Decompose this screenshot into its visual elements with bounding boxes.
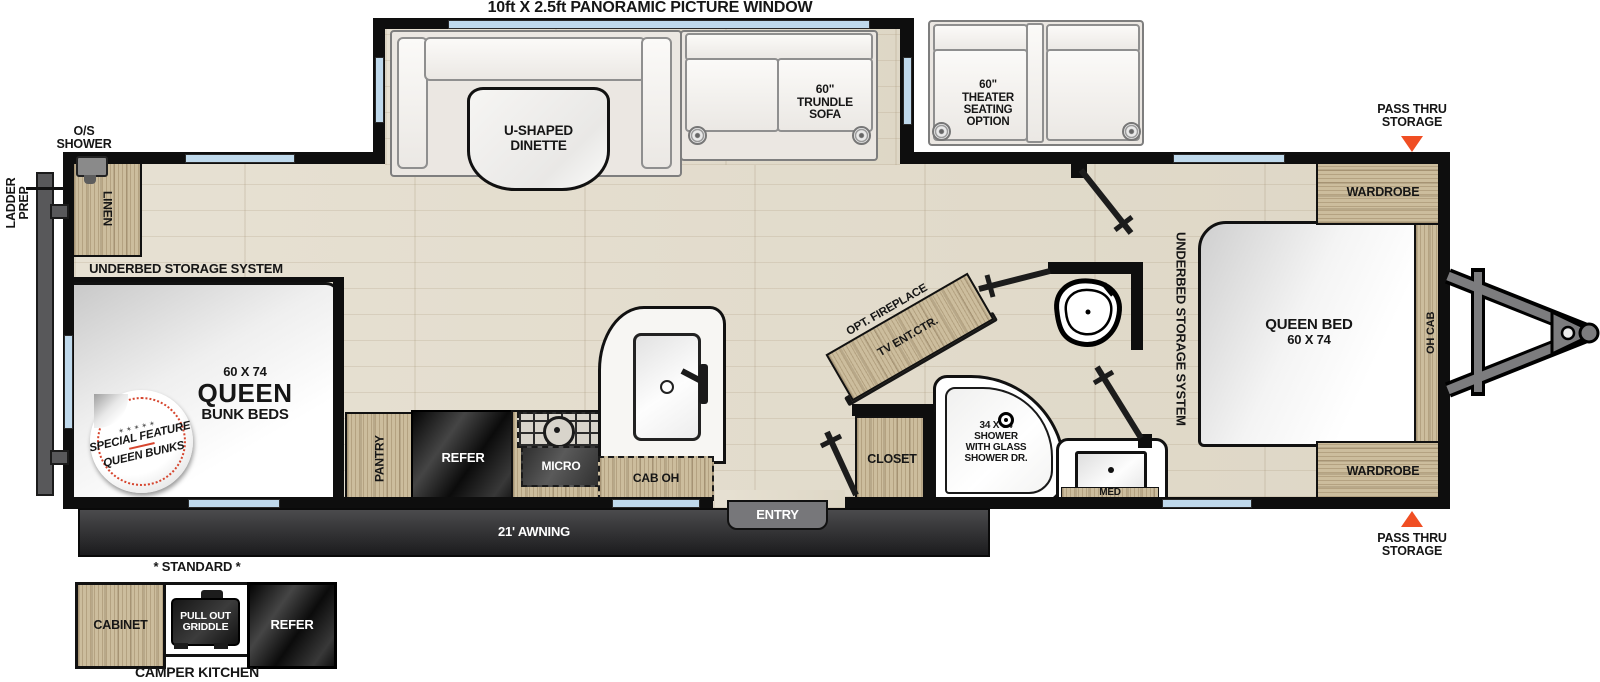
dinette-label-2: DINETTE xyxy=(510,139,566,154)
camper-cabinet: CABINET xyxy=(75,582,166,669)
trundle-knob-right xyxy=(852,126,871,145)
wardrobe-front: WARDROBE xyxy=(1316,441,1450,503)
pantry-label: PANTRY xyxy=(347,414,413,504)
window-top-rear xyxy=(185,154,295,163)
bunk-type-label: BUNK BEDS xyxy=(201,407,288,423)
window-slideout-left xyxy=(375,57,384,123)
refer-label: REFER xyxy=(441,451,484,465)
griddle-feet xyxy=(174,643,188,649)
trundle-label-1: 60" xyxy=(816,83,834,96)
window-panoramic xyxy=(448,20,870,29)
os-shower-label-1: O/S xyxy=(74,125,95,139)
pass-thru-label-top: PASS THRU STORAGE xyxy=(1352,100,1472,132)
cooktop xyxy=(517,412,601,448)
wardrobe-rear-label: WARDROBE xyxy=(1347,186,1420,200)
wall-closet-right xyxy=(923,412,935,502)
trundle-label-3: SOFA xyxy=(809,108,841,121)
dinette-cushion-top xyxy=(424,37,646,81)
theater-label: 60" THEATER SEATING OPTION xyxy=(936,76,1040,132)
pass-thru-bottom-2: STORAGE xyxy=(1382,545,1442,559)
ladder-bracket-bottom xyxy=(50,450,69,465)
wall-bunk-divider xyxy=(333,277,344,502)
special-feature-badge: ✶✶✶✶✶ SPECIAL FEATURE QUEEN BUNKS xyxy=(90,390,193,493)
shower-door-label: SHOWER DR. xyxy=(964,454,1027,465)
bunk-name-label: QUEEN xyxy=(198,379,293,407)
entry-label: ENTRY xyxy=(756,508,799,522)
closet: CLOSET xyxy=(855,416,929,504)
standard-label: * STANDARD * xyxy=(107,560,287,575)
window-slideout-right xyxy=(903,57,912,125)
micro-label: MICRO xyxy=(542,460,581,473)
pass-thru-label-bottom: PASS THRU STORAGE xyxy=(1352,529,1472,561)
queen-bed-size: 60 X 74 xyxy=(1287,333,1330,347)
cab-oh-kitchen: CAB OH xyxy=(598,456,714,501)
wall-closet-top xyxy=(852,404,934,416)
wall-bunk-head-line xyxy=(70,277,338,282)
underbed-storage-label-front: UNDERBED STORAGE SYSTEM xyxy=(1172,224,1189,434)
pass-thru-bottom-1: PASS THRU xyxy=(1377,532,1447,546)
bunk-size-label: 60 X 74 xyxy=(223,365,266,379)
awning-bar: 21' AWNING xyxy=(78,508,990,557)
window-bottom-kitchen xyxy=(612,499,700,508)
trundle-back xyxy=(685,33,873,61)
trundle-label: 60" TRUNDLE SOFA xyxy=(785,82,865,122)
hitch-tongue-icon xyxy=(1448,268,1598,396)
griddle-feet-2 xyxy=(214,643,228,649)
refrigerator: REFER xyxy=(411,410,515,506)
outside-shower-head-icon xyxy=(84,175,96,184)
griddle-body: PULL OUT GRIDDLE xyxy=(171,598,240,646)
queen-bed-label: QUEEN BED 60 X 74 xyxy=(1229,312,1389,352)
underbed-storage-label-rear: UNDERBED STORAGE SYSTEM xyxy=(78,262,294,277)
window-bottom-bedroom xyxy=(1162,499,1252,508)
wall-bath-vertical xyxy=(1131,262,1143,350)
pull-out-griddle: PULL OUT GRIDDLE xyxy=(163,582,250,657)
sink-drain xyxy=(660,380,674,394)
camper-cabinet-label: CABINET xyxy=(93,619,147,633)
pass-thru-arrow-down-icon xyxy=(1401,136,1423,152)
dinette-table: U-SHAPED DINETTE xyxy=(467,87,610,191)
outside-shower-icon xyxy=(76,156,108,177)
pass-thru-arrow-up-icon xyxy=(1401,511,1423,527)
theater-label-3: SEATING xyxy=(964,104,1013,116)
ladder-prep-label-1: LADDER xyxy=(5,178,19,229)
rear-ladder xyxy=(36,172,54,496)
dinette-label-1: U-SHAPED xyxy=(504,124,573,139)
bunk-bed-label: 60 X 74 QUEEN BUNK BEDS xyxy=(165,365,325,423)
pantry-cabinet: PANTRY xyxy=(345,412,415,506)
cab-oh-label: CAB OH xyxy=(633,472,679,485)
window-rear-side xyxy=(64,335,73,429)
vanity-sink xyxy=(1075,451,1147,491)
floorplan-canvas: UNDERBED STORAGE SYSTEM LINEN 60 X 74 QU… xyxy=(0,0,1600,682)
theater-label-1: 60" xyxy=(979,79,997,91)
theater-label-2: THEATER xyxy=(962,92,1014,104)
griddle-label-2: GRIDDLE xyxy=(183,622,229,633)
kitchen-sink xyxy=(633,333,701,441)
camper-kitchen-title: CAMPER KITCHEN xyxy=(97,665,297,681)
theater-knob-right xyxy=(1122,122,1141,141)
entry-step: ENTRY xyxy=(727,500,828,530)
ladder-prep-label: LADDER PREP xyxy=(1,158,35,248)
microwave: MICRO xyxy=(521,446,601,487)
camper-refer: REFER xyxy=(247,582,337,669)
queen-bed: QUEEN BED 60 X 74 xyxy=(1198,221,1420,447)
awning-label: 21' AWNING xyxy=(498,525,570,539)
theater-label-4: OPTION xyxy=(967,116,1010,128)
wall-bath-horizontal xyxy=(1048,262,1143,274)
trundle-knob-left xyxy=(688,126,707,145)
dinette-cushion-right xyxy=(641,37,672,169)
pass-thru-top-1: PASS THRU xyxy=(1377,103,1447,117)
ladder-bracket-top xyxy=(50,204,69,219)
wardrobe-front-label: WARDROBE xyxy=(1347,465,1420,479)
pass-thru-top-2: STORAGE xyxy=(1382,116,1442,130)
window-top-bedroom xyxy=(1173,154,1285,163)
wall-right xyxy=(1438,152,1450,509)
queen-bed-name: QUEEN BED xyxy=(1265,317,1352,333)
ladder-prep-label-2: PREP xyxy=(18,186,32,219)
burner-icon xyxy=(543,416,575,448)
wall-med-stub xyxy=(1138,434,1152,448)
med-vanity: MED xyxy=(1056,438,1168,506)
trundle-cushion-left xyxy=(685,58,779,132)
os-shower-label-2: SHOWER xyxy=(56,138,111,152)
camper-refer-label: REFER xyxy=(270,618,313,632)
wardrobe-rear: WARDROBE xyxy=(1316,160,1450,225)
wall-bedroom-door-stub xyxy=(1071,163,1087,178)
window-bottom-bunk xyxy=(188,499,280,508)
page-title: 10ft X 2.5ft PANORAMIC PICTURE WINDOW xyxy=(380,0,920,16)
shower-label: 34 X 34 SHOWER WITH GLASS SHOWER DR. xyxy=(948,412,1044,474)
closet-label: CLOSET xyxy=(867,453,917,467)
os-shower-label: O/S SHOWER xyxy=(42,123,126,153)
